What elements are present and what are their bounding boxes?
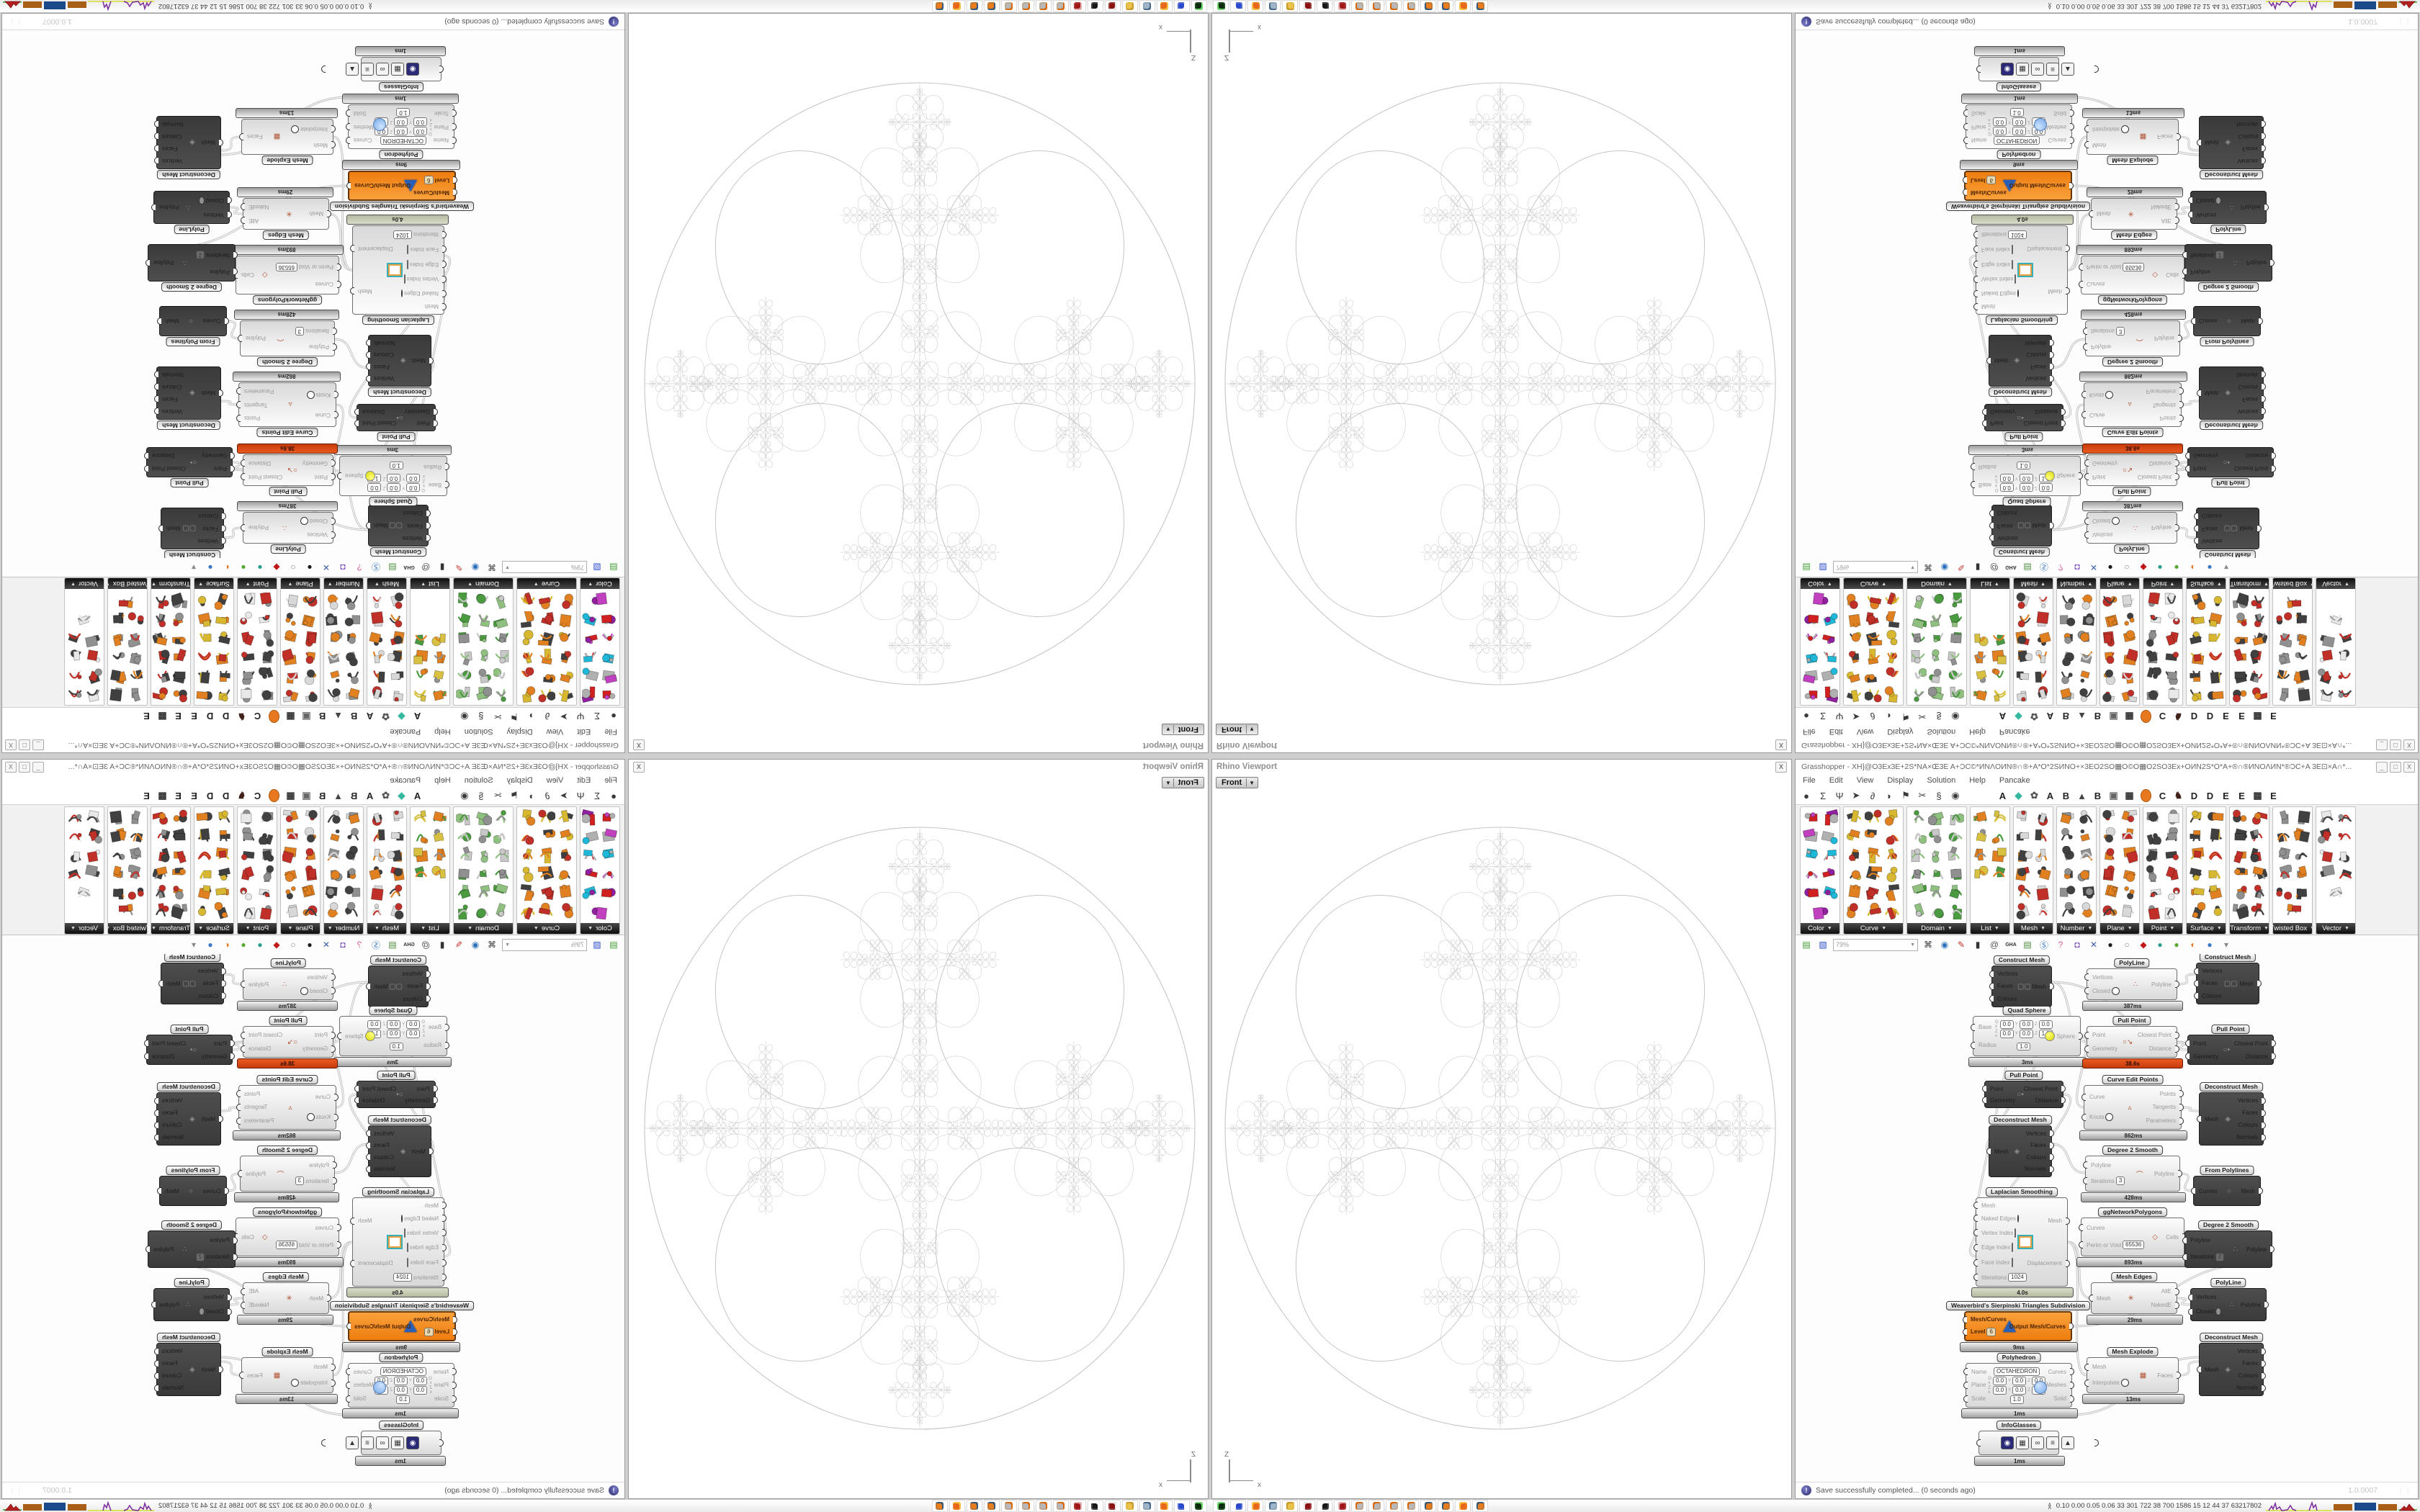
empty-value-box[interactable]: [2015, 274, 2016, 284]
port-nub[interactable]: [1989, 971, 1994, 978]
gem-teal-icon[interactable]: ●: [2154, 938, 2166, 951]
component-icon[interactable]: [128, 667, 145, 685]
empty-value-box[interactable]: [407, 245, 408, 254]
gh-node-curve-edit-points[interactable]: CurveKnots▵PointsTangentsParameters: [238, 382, 336, 427]
port-closed[interactable]: Closed: [2087, 987, 2125, 995]
port-nub[interactable]: [154, 1372, 158, 1380]
value-capsule[interactable]: 2: [196, 1253, 205, 1261]
component-icon[interactable]: [258, 593, 275, 610]
component-icon[interactable]: [66, 667, 84, 685]
component-icon[interactable]: [344, 686, 362, 703]
value-capsule[interactable]: 1.0: [2017, 462, 2030, 469]
value-capsule[interactable]: 65536: [276, 1241, 297, 1249]
palette-column-label[interactable]: Plane▼: [2100, 923, 2139, 934]
component-icon[interactable]: [85, 649, 102, 666]
value-capsule[interactable]: 1024: [393, 1273, 412, 1282]
port-nakede[interactable]: NakedE: [2146, 1302, 2177, 1308]
gh-node-pull-point[interactable]: PointGeometry○•Closest PointDistance: [146, 1035, 233, 1065]
port-interpolate[interactable]: Interpolate: [286, 125, 333, 133]
component-icon[interactable]: [493, 902, 511, 919]
menu-item-solution[interactable]: Solution: [1927, 727, 1955, 736]
port-nub[interactable]: [2182, 268, 2187, 275]
port-knots[interactable]: Knots: [2084, 1113, 2118, 1121]
component-icon[interactable]: [2336, 865, 2354, 882]
grid-icon[interactable]: ▦: [391, 1436, 404, 1449]
component-icon[interactable]: [1883, 827, 1901, 845]
sphere-wire-icon[interactable]: ○: [2120, 938, 2133, 951]
component-icon[interactable]: [601, 809, 618, 826]
export-doc-icon[interactable]: ▤: [386, 561, 399, 574]
component-icon[interactable]: [2015, 902, 2033, 919]
component-icon[interactable]: [2250, 883, 2267, 901]
port-geometry[interactable]: Geometry: [2188, 453, 2221, 459]
port-nub[interactable]: [1963, 1382, 1968, 1389]
component-icon[interactable]: [1821, 827, 1838, 845]
port-nub[interactable]: [346, 109, 350, 117]
port-polyline[interactable]: Polyline: [148, 1246, 179, 1253]
draw-pen-icon[interactable]: ✎: [452, 938, 465, 951]
port-nub[interactable]: [1982, 1097, 1986, 1104]
component-icon[interactable]: [171, 686, 189, 703]
port-vertices[interactable]: Vertices: [369, 375, 399, 382]
port-normals[interactable]: Normals: [157, 121, 189, 127]
gem-blue-icon[interactable]: ●: [204, 938, 217, 951]
minimize-button[interactable]: _: [32, 740, 44, 751]
value-capsule[interactable]: 0.0: [2000, 474, 2014, 482]
port-interpolate[interactable]: Interpolate: [2087, 125, 2134, 133]
plugin-tab-e3[interactable]: E: [142, 711, 151, 722]
port-curves[interactable]: Curves: [271, 281, 339, 287]
card-icon[interactable]: [1070, 0, 1086, 12]
gh-node-laplacian-smoothing[interactable]: MeshNaked EdgesVertex IndexEdge IndexFac…: [352, 225, 444, 315]
gh-node-deconstruct-mesh[interactable]: Mesh◈VerticesFacesColoursNormals: [1989, 1125, 2052, 1177]
component-icon[interactable]: [1821, 846, 1838, 863]
value-capsule[interactable]: 0.0: [413, 1377, 427, 1385]
port-closest-point[interactable]: Closest Point: [147, 1040, 191, 1047]
plugin-tab-a1[interactable]: A: [1998, 711, 2007, 722]
port-curve[interactable]: Curve: [2084, 1094, 2118, 1100]
ribbons-icon[interactable]: ✕: [2087, 938, 2100, 951]
draw-pen-icon[interactable]: ✎: [1955, 561, 1968, 574]
component-icon[interactable]: [1991, 846, 2008, 863]
component-icon[interactable]: [387, 686, 405, 703]
open-file-icon[interactable]: ▤: [607, 561, 620, 574]
value-capsule[interactable]: 0.0: [2012, 1386, 2026, 1395]
grid-icon[interactable]: ▦: [2016, 1436, 2029, 1449]
gem-green-icon[interactable]: ●: [2170, 938, 2183, 951]
port-faces[interactable]: Faces: [194, 980, 223, 986]
component-icon[interactable]: [2188, 667, 2205, 685]
component-icon[interactable]: [1865, 667, 1882, 685]
component-icon[interactable]: [475, 827, 492, 845]
port-polyline[interactable]: Polyline: [243, 525, 274, 531]
component-icon[interactable]: [66, 809, 84, 826]
component-icon[interactable]: [85, 630, 102, 647]
component-icon[interactable]: [412, 865, 429, 882]
component-icon[interactable]: [153, 667, 170, 685]
component-icon[interactable]: [475, 809, 492, 826]
component-icon[interactable]: [1821, 649, 1838, 666]
component-icon[interactable]: [2077, 865, 2094, 882]
component-icon[interactable]: [2077, 593, 2094, 610]
component-icon[interactable]: [128, 883, 145, 901]
component-icon[interactable]: [1991, 809, 2008, 826]
gh-node-mesh-explode[interactable]: MeshInterpolate▦Faces: [2087, 119, 2179, 155]
port-faces[interactable]: Faces: [2152, 134, 2178, 140]
component-icon[interactable]: [2058, 865, 2076, 882]
component-icon[interactable]: [344, 649, 362, 666]
plugin-tab-e2[interactable]: E: [2237, 711, 2246, 722]
component-icon[interactable]: [153, 686, 170, 703]
component-icon[interactable]: [2120, 667, 2138, 685]
node-canvas[interactable]: Construct MeshVerticesFacesColours▢▢Mesh…: [1796, 954, 2418, 1482]
port-mesh-curves[interactable]: Mesh/Curves: [417, 189, 454, 196]
menu-item-display[interactable]: Display: [1887, 776, 1913, 785]
port-edge-index[interactable]: Edge Index: [1976, 260, 2017, 269]
port-colours[interactable]: Colours: [157, 133, 187, 140]
component-icon[interactable]: [582, 611, 599, 629]
bird-tab[interactable]: ♞: [237, 790, 246, 801]
sphere-wire-icon[interactable]: ○: [2120, 561, 2133, 574]
palette-column-label[interactable]: Domain▼: [1907, 578, 1966, 589]
component-icon[interactable]: [301, 593, 318, 610]
preview-eye-icon[interactable]: ◉: [1938, 938, 1951, 951]
ribbons-icon[interactable]: ✕: [320, 938, 333, 951]
port-nub[interactable]: [2079, 264, 2083, 271]
component-icon[interactable]: [2015, 667, 2033, 685]
menu-item-view[interactable]: View: [547, 776, 564, 785]
port-base[interactable]: Base: [1973, 1024, 1995, 1030]
mountain-tab[interactable]: ▲: [2077, 711, 2087, 722]
port-nub[interactable]: [236, 1090, 241, 1097]
value-capsule[interactable]: 1.0: [396, 109, 410, 117]
component-icon[interactable]: [2164, 902, 2181, 919]
component-icon[interactable]: [2102, 827, 2119, 845]
port-vertices[interactable]: Vertices: [401, 535, 428, 541]
port-nub[interactable]: [2188, 1294, 2192, 1301]
help-pink-icon[interactable]: ?: [353, 938, 366, 951]
component-icon[interactable]: [1972, 649, 1989, 666]
toggle-icon[interactable]: [300, 518, 308, 526]
value-capsule[interactable]: 1024: [2008, 1273, 2027, 1282]
viewport-tab-front[interactable]: Front ▼: [1162, 724, 1204, 735]
port-nub[interactable]: [145, 1246, 150, 1253]
solidworks-icon[interactable]: [1105, 0, 1121, 12]
plugin-tab-e1[interactable]: E: [189, 711, 199, 722]
component-icon[interactable]: [66, 630, 84, 647]
port-closest-point[interactable]: Closest Point: [2019, 420, 2063, 427]
value-capsule[interactable]: 0.0: [2000, 1030, 2014, 1038]
menu-item-display[interactable]: Display: [1887, 727, 1913, 736]
port-closest-point[interactable]: Closest Point: [357, 420, 401, 427]
component-icon[interactable]: [1972, 865, 1989, 882]
component-icon[interactable]: [2293, 809, 2311, 826]
component-icon[interactable]: [2058, 809, 2076, 826]
port-nub[interactable]: [1963, 1395, 1968, 1403]
port-nub[interactable]: [154, 1097, 158, 1104]
menu-item-file[interactable]: File: [1803, 727, 1816, 736]
orange-oval-tab[interactable]: [269, 710, 279, 723]
port-distance[interactable]: Distance: [357, 1097, 390, 1104]
component-icon[interactable]: [2327, 611, 2344, 629]
port-faces[interactable]: Faces: [2197, 526, 2226, 532]
component-icon[interactable]: [2077, 902, 2094, 919]
component-icon[interactable]: [493, 686, 511, 703]
component-icon[interactable]: [601, 846, 618, 863]
menu-item-edit[interactable]: Edit: [577, 727, 591, 736]
component-icon[interactable]: [2231, 865, 2249, 882]
port-nub[interactable]: [2197, 390, 2201, 397]
maths-tab-icon[interactable]: Σ: [1818, 711, 1828, 722]
plugin-tab-a1[interactable]: A: [1998, 791, 2007, 801]
component-icon[interactable]: [1991, 667, 2008, 685]
component-icon[interactable]: [2164, 846, 2181, 863]
port-vertex-index[interactable]: Vertex Index: [403, 274, 444, 284]
port-nub[interactable]: [1982, 1085, 1986, 1092]
help-pink-icon[interactable]: ?: [353, 561, 366, 574]
component-icon[interactable]: [493, 865, 511, 882]
component-icon[interactable]: [369, 883, 386, 901]
menu-item-view[interactable]: View: [1857, 776, 1874, 785]
component-icon[interactable]: [601, 686, 618, 703]
port-mesh[interactable]: Mesh: [2200, 1367, 2223, 1373]
empty-value-box[interactable]: [407, 260, 408, 269]
port-nub[interactable]: [236, 387, 241, 395]
component-icon[interactable]: [2231, 883, 2249, 901]
gh-node-construct-mesh[interactable]: VerticesFacesColours▢▢Mesh: [368, 966, 429, 1007]
gh-node-polyline[interactable]: VerticesClosed∴Polyline: [2190, 1288, 2267, 1321]
port-tangents[interactable]: Tangents: [2148, 1104, 2181, 1110]
port-vertices[interactable]: Vertices: [2197, 968, 2226, 974]
gh-node-construct-mesh[interactable]: VerticesFacesColours▢▢Mesh: [2196, 508, 2259, 549]
gh-node-deconstruct-mesh[interactable]: Mesh◈VerticesFacesColoursNormals: [1989, 335, 2052, 387]
component-icon[interactable]: [2250, 865, 2267, 882]
port-level[interactable]: Level6: [417, 1328, 454, 1336]
display-tab-icon[interactable]: ◉: [1950, 711, 1960, 722]
close-button[interactable]: X: [5, 762, 17, 773]
component-icon[interactable]: [2188, 809, 2205, 826]
port-scale[interactable]: Scale: [1966, 110, 1988, 117]
component-icon[interactable]: [258, 667, 275, 685]
component-icon[interactable]: [2102, 809, 2119, 826]
port-points[interactable]: Points: [239, 415, 265, 421]
port-nub[interactable]: [2084, 1045, 2089, 1053]
port-faces[interactable]: Faces: [242, 134, 268, 140]
port-colours[interactable]: Colours: [2233, 384, 2263, 390]
port-mesh[interactable]: Mesh: [160, 318, 184, 325]
port-mesh[interactable]: Mesh: [353, 1218, 377, 1224]
checker-tab[interactable]: ▩: [158, 711, 167, 722]
palette-column-label[interactable]: Color▼: [581, 578, 619, 589]
shield-tab[interactable]: ▣: [2109, 790, 2118, 801]
port-polyline[interactable]: Polyline: [2185, 269, 2229, 275]
gh-node-deconstruct-mesh[interactable]: Mesh◈VerticesFacesColoursNormals: [156, 1343, 221, 1396]
port-nub[interactable]: [1963, 189, 1967, 196]
port-alle[interactable]: AllE: [2156, 1288, 2177, 1295]
maximize-button[interactable]: □: [19, 740, 30, 751]
port-point[interactable]: Point: [297, 1032, 333, 1038]
component-icon[interactable]: [196, 686, 213, 703]
folder-icon[interactable]: [1122, 1500, 1138, 1512]
port-vertices[interactable]: Vertices: [401, 971, 428, 977]
component-icon[interactable]: [431, 686, 448, 703]
component-icon[interactable]: [456, 902, 473, 919]
sets-tab-icon[interactable]: Ψ: [575, 711, 586, 722]
port-polyline[interactable]: Polyline: [2185, 1237, 2229, 1243]
sphere-black-icon[interactable]: ●: [2104, 938, 2117, 951]
surface-tab-icon[interactable]: ◗: [526, 711, 536, 722]
save-file-icon[interactable]: ▧: [591, 561, 604, 574]
component-icon[interactable]: [109, 667, 127, 685]
port-nub[interactable]: [354, 1097, 359, 1104]
component-icon[interactable]: [2145, 865, 2162, 882]
component-icon[interactable]: [2015, 611, 2033, 629]
grid-icon[interactable]: ▦: [2016, 63, 2029, 76]
port-mesh[interactable]: Mesh: [161, 526, 186, 532]
value-capsule[interactable]: 0.0: [1993, 1377, 2007, 1385]
component-icon[interactable]: [2231, 902, 2249, 919]
value-capsule[interactable]: 0.0: [1993, 127, 2007, 136]
port-output-mesh-curves[interactable]: Output Mesh/Curves: [2004, 1323, 2071, 1330]
port-point[interactable]: Point: [405, 420, 435, 427]
menu-item-help[interactable]: Help: [434, 776, 451, 785]
component-icon[interactable]: [1991, 827, 2008, 845]
component-icon[interactable]: [119, 593, 136, 610]
empty-value-box[interactable]: [407, 1258, 408, 1267]
menu-item-view[interactable]: View: [547, 727, 564, 736]
plugin-tab-c[interactable]: C: [2158, 791, 2167, 801]
component-icon[interactable]: [2120, 630, 2138, 647]
component-icon[interactable]: [2145, 611, 2162, 629]
curve-tab-icon[interactable]: ∂: [1868, 711, 1878, 722]
component-icon[interactable]: [2102, 846, 2119, 863]
transform-tab-icon[interactable]: §: [1934, 791, 1944, 801]
resize-grip[interactable]: ⋮⋮: [8, 1487, 22, 1495]
port-mesh[interactable]: Mesh: [286, 1364, 333, 1370]
tray-chevron-icon[interactable]: ∧∧: [2048, 4, 2052, 9]
port-vertices[interactable]: Vertices: [369, 1130, 399, 1137]
component-icon[interactable]: [369, 667, 386, 685]
blender-icon-3[interactable]: [932, 0, 948, 12]
port-vertices[interactable]: Vertices: [2021, 1130, 2051, 1137]
component-icon[interactable]: [493, 827, 511, 845]
port-face-index[interactable]: Face Index: [403, 1258, 444, 1267]
plugin-tab-e1[interactable]: E: [2221, 711, 2231, 722]
empty-value-box[interactable]: [2012, 1258, 2013, 1267]
component-icon[interactable]: [85, 827, 102, 845]
port-cells[interactable]: Cells: [2161, 1234, 2184, 1241]
value-capsule[interactable]: 0.0: [406, 1030, 420, 1038]
blender-icon-3[interactable]: [1472, 1500, 1488, 1512]
port-nub[interactable]: [2079, 281, 2083, 288]
mountain-tab[interactable]: ▲: [2077, 791, 2087, 801]
component-icon[interactable]: [326, 593, 343, 610]
port-closest-point[interactable]: Closest Point: [243, 474, 287, 480]
empty-value-box[interactable]: [2012, 260, 2013, 269]
gha-icon[interactable]: GHA: [2004, 561, 2017, 574]
value-capsule[interactable]: OCTAHEDRON: [1994, 1367, 2040, 1376]
component-icon[interactable]: [582, 809, 599, 826]
port-nub[interactable]: [1973, 1244, 1978, 1251]
port-face-index[interactable]: Face Index: [403, 245, 444, 254]
component-icon[interactable]: [2275, 883, 2292, 901]
plugin-tab-d1[interactable]: D: [221, 711, 230, 722]
component-icon[interactable]: [258, 630, 275, 647]
port-faces[interactable]: Faces: [157, 1110, 183, 1116]
component-icon[interactable]: [171, 630, 189, 647]
port-mesh[interactable]: Mesh: [1989, 1148, 2012, 1155]
port-vertices[interactable]: Vertices: [295, 974, 333, 981]
component-icon[interactable]: [2034, 611, 2051, 629]
sphere-black-icon[interactable]: ●: [303, 938, 316, 951]
gimp-icon-3[interactable]: [1018, 1500, 1034, 1512]
gimp-icon-1[interactable]: [1053, 0, 1069, 12]
gh-node-quad-sphere[interactable]: BaseRadiusO x0.0Y0.0Z0.0Z x0.0Y0.0Z1.01.…: [339, 456, 447, 496]
port-tangents[interactable]: Tangents: [239, 1104, 272, 1110]
jet-icon[interactable]: ▲: [346, 63, 359, 76]
component-icon[interactable]: [153, 827, 170, 845]
component-icon[interactable]: [2034, 846, 2051, 863]
component-icon[interactable]: [2336, 649, 2354, 666]
component-icon[interactable]: [171, 883, 189, 901]
gh-node-infoglasses[interactable]: ◉▦∞≡▲: [361, 57, 442, 81]
component-icon[interactable]: [258, 809, 275, 826]
zoom-level-field[interactable]: 79%▼: [1833, 562, 1918, 574]
component-icon[interactable]: [1909, 593, 1927, 610]
tray-chevron-icon[interactable]: ∧∧: [368, 4, 372, 9]
bake-icon[interactable]: ▮: [436, 938, 449, 951]
component-icon[interactable]: [171, 865, 189, 882]
port-level[interactable]: Level6: [1966, 1328, 2003, 1336]
component-icon[interactable]: [2250, 846, 2267, 863]
component-icon[interactable]: [412, 630, 429, 647]
component-icon[interactable]: [1883, 809, 1901, 826]
port-curve[interactable]: Curve: [302, 1094, 336, 1100]
bake-icon[interactable]: ▮: [436, 561, 449, 574]
plugin-tab-e2[interactable]: E: [174, 791, 183, 801]
gh-node-polyline[interactable]: VerticesClosed∴Polyline: [243, 968, 333, 1000]
folder-icon[interactable]: [1282, 0, 1298, 12]
port-nub[interactable]: [241, 524, 245, 531]
component-icon[interactable]: [1947, 827, 1964, 845]
gh-node-mesh-explode[interactable]: MeshInterpolate▦Faces: [2087, 1357, 2179, 1393]
port-mesh[interactable]: Mesh: [1976, 303, 2017, 310]
port-faces[interactable]: Faces: [369, 364, 395, 370]
component-icon[interactable]: [2293, 611, 2311, 629]
port-nub[interactable]: [1973, 1274, 1978, 1281]
component-icon[interactable]: [215, 809, 232, 826]
component-icon[interactable]: [582, 686, 599, 703]
port-vertex-index[interactable]: Vertex Index: [1976, 274, 2017, 284]
component-icon[interactable]: [239, 593, 256, 610]
palette-column-label[interactable]: Transform▼: [2230, 578, 2269, 589]
zoom-extents-icon[interactable]: ⌘: [1922, 561, 1935, 574]
component-icon[interactable]: [519, 827, 537, 845]
port-name[interactable]: Name: [1966, 1369, 1988, 1375]
port-mesh-curves[interactable]: Mesh/Curves: [1966, 1316, 2003, 1323]
plugin-tab-a2[interactable]: A: [365, 791, 375, 801]
port-nub[interactable]: [151, 204, 156, 211]
port-faces[interactable]: Faces: [2152, 1372, 2178, 1379]
palette-column-label[interactable]: List▼: [1971, 923, 2009, 934]
port-alle[interactable]: AllE: [243, 217, 264, 224]
port-meshes[interactable]: Meshes: [2041, 1382, 2071, 1388]
port-mesh[interactable]: Mesh: [353, 288, 377, 294]
orange-oval-tab[interactable]: [2141, 789, 2151, 802]
port-mesh[interactable]: Mesh: [197, 1116, 220, 1122]
port-perim-or-void[interactable]: Perim or Void65536: [2081, 263, 2149, 271]
component-icon[interactable]: [2102, 630, 2119, 647]
